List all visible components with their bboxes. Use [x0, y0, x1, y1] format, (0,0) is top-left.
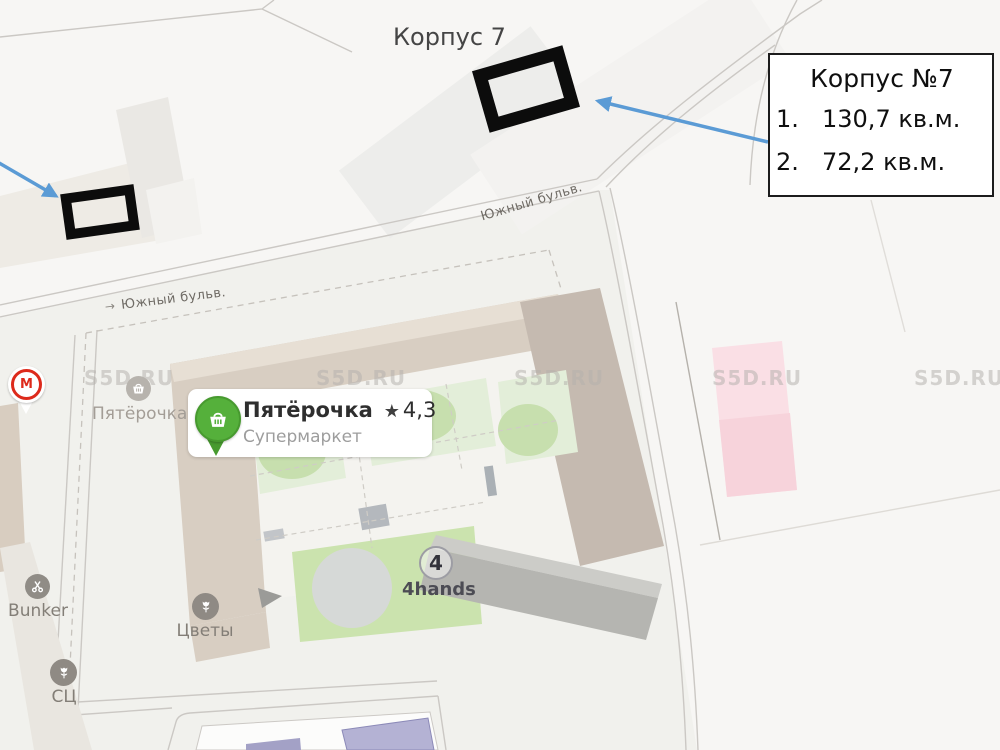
poi-label-service-center: СЦ — [46, 687, 82, 707]
info-item-area: 72,2 кв.м. — [822, 141, 945, 184]
poi-label-pyaterochka-faded: Пятёрочка — [92, 404, 187, 424]
watermark: S5D.RU — [712, 366, 802, 390]
poi-rating: 4,3 — [403, 398, 436, 422]
info-item-number: 1. — [776, 98, 812, 141]
poi-label-flowers: Цветы — [172, 621, 238, 641]
shopping-basket-icon — [126, 376, 151, 401]
map-canvas[interactable]: S5D.RU S5D.RU S5D.RU S5D.RU S5D.RU Южный… — [0, 0, 1000, 750]
scissors-icon — [25, 574, 50, 599]
fourhands-badge: 4 — [419, 546, 453, 580]
pink-building — [712, 341, 797, 497]
info-item-number: 2. — [776, 141, 812, 184]
flower-icon — [50, 659, 77, 686]
corpus7-info-box: Корпус №7 1. 130,7 кв.м. 2. 72,2 кв.м. — [768, 53, 994, 197]
poi-subtitle: Супермаркет — [243, 427, 362, 447]
watermark: S5D.RU — [914, 366, 1000, 390]
info-box-row: 2. 72,2 кв.м. — [776, 141, 988, 184]
flower-icon — [192, 593, 219, 620]
poi-title: Пятёрочка — [243, 398, 373, 422]
star-icon: ★ — [384, 401, 400, 422]
street-direction-arrow: → — [104, 299, 116, 314]
corpus7-map-label: Корпус 7 — [393, 23, 506, 51]
info-box-title: Корпус №7 — [776, 60, 988, 98]
magnit-icon: М — [8, 366, 45, 403]
shopping-basket-pin-icon — [195, 396, 241, 442]
magnit-letter: М — [11, 369, 42, 400]
poi-label-fourhands: 4hands — [402, 579, 476, 600]
poi-label-bunker: Bunker — [4, 601, 72, 621]
watermark: S5D.RU — [514, 366, 604, 390]
watermark: S5D.RU — [316, 366, 406, 390]
info-box-row: 1. 130,7 кв.м. — [776, 98, 988, 141]
info-item-area: 130,7 кв.м. — [822, 98, 960, 141]
